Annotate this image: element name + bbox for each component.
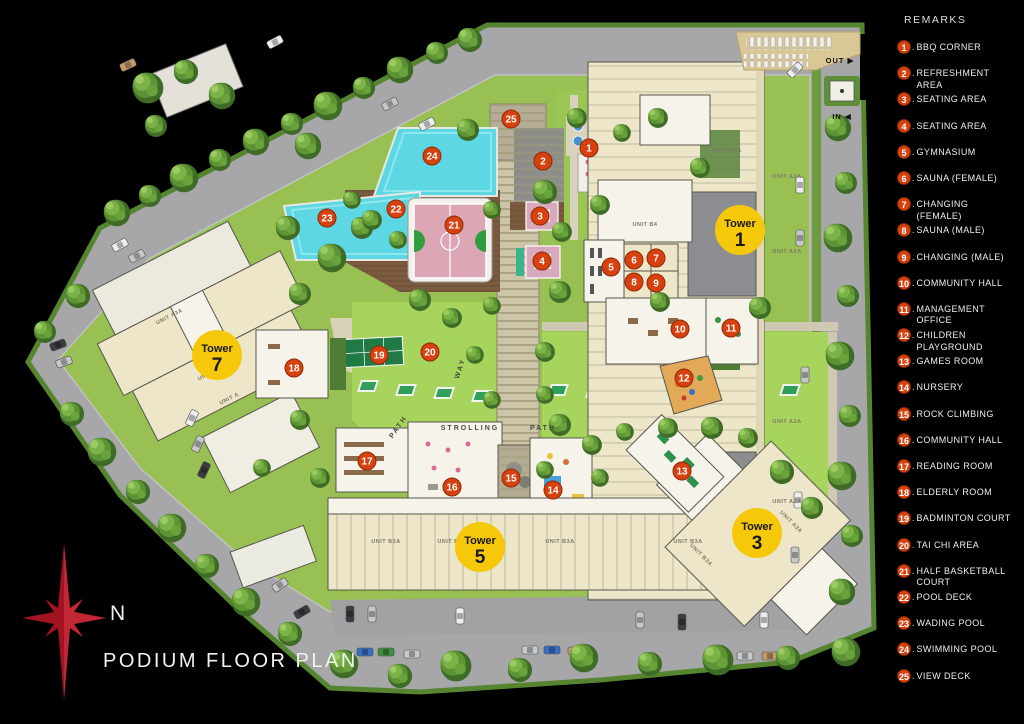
legend-item-number: 16 [897,433,911,447]
legend-item-number: 4 [897,119,911,133]
svg-text:7: 7 [653,254,659,265]
svg-text:10: 10 [674,325,686,336]
svg-text:13: 13 [676,467,688,478]
map-label: IN ◀ [832,112,852,121]
unit-label: UNIT B3A [371,539,400,545]
legend-item-number: 8 [897,223,911,237]
svg-text:16: 16 [446,483,458,494]
marker-13: 13 [673,462,691,480]
legend-item-label: Tai Chi Area [917,538,1013,552]
legend-item-number: 2 [897,66,911,80]
legend-item-label: Reading Room [917,459,1013,473]
marker-23: 23 [318,209,336,227]
legend-item-23: 23.Wading Pool [897,616,1022,642]
marker-2: 2 [534,152,552,170]
marker-10: 10 [671,320,689,338]
legend-item-7: 7.Changing (Female) [897,197,1022,223]
legend-item-number: 19 [897,511,911,525]
svg-text:20: 20 [424,348,436,359]
svg-text:5: 5 [475,547,486,568]
marker-8: 8 [625,273,643,291]
legend-item-25: 25.View Deck [897,669,1022,695]
compass-rose [22,544,106,700]
legend-item-number: 1 [897,40,911,54]
legend-item-label: Elderly Room [917,485,1013,499]
marker-15: 15 [502,469,520,487]
marker-16: 16 [443,478,461,496]
marker-24: 24 [423,147,441,165]
legend-item-15: 15.Rock Climbing [897,407,1022,433]
unit-label: UNIT B4 [633,222,658,228]
svg-text:Tower: Tower [201,343,233,355]
legend-item-number: 15 [897,407,911,421]
marker-5: 5 [602,258,620,276]
legend-item-number: 13 [897,354,911,368]
legend-item-17: 17.Reading Room [897,459,1022,485]
legend-item-label: Sauna (Female) [917,171,1013,185]
unit-label: UNIT A2A [712,148,741,154]
legend-item-label: Pool Deck [917,590,1013,604]
marker-19: 19 [370,346,388,364]
legend-item-number: 5 [897,145,911,159]
svg-text:1: 1 [735,230,746,251]
legend-item-20: 20.Tai Chi Area [897,538,1022,564]
legend-item-13: 13.Games Room [897,354,1022,380]
marker-14: 14 [544,481,562,499]
svg-text:8: 8 [631,278,637,289]
legend-item-number: 7 [897,197,911,211]
svg-text:9: 9 [653,279,659,290]
marker-11: 11 [722,319,740,337]
plan-title: Podium Floor Plan [103,650,358,673]
legend-item-label: Changing (Female) [917,197,1013,222]
tower-badge-5: Tower5 [455,522,505,572]
legend-item-number: 9 [897,250,911,264]
legend-list: 1.Bbq Corner2.Refreshment Area3.Seating … [897,40,1022,695]
legend-item-number: 3 [897,92,911,106]
legend-item-9: 9.Changing (Male) [897,250,1022,276]
svg-text:3: 3 [537,212,543,223]
svg-text:6: 6 [631,256,637,267]
svg-text:Tower: Tower [724,218,756,230]
legend-item-number: 22 [897,590,911,604]
unit-label: UNIT B3A [673,539,702,545]
north-label: N [110,602,125,626]
legend-item-label: Rock Climbing [917,407,1013,421]
marker-3: 3 [531,207,549,225]
marker-6: 6 [625,251,643,269]
site-map: UNIT A2AUNIT A2AUNIT A2AUNIT A2AUNIT A2A… [0,0,1024,724]
svg-text:11: 11 [726,324,737,335]
svg-text:7: 7 [212,355,223,376]
legend-item-label: View Deck [917,669,1013,683]
unit-label: UNIT A2A [772,499,801,505]
legend-item-label: Community Hall [917,276,1013,290]
unit-label: UNIT A2A [772,174,801,180]
marker-18: 18 [285,359,303,377]
legend-item-label: Badminton Court [917,511,1013,525]
marker-17: 17 [358,452,376,470]
legend-item-19: 19.Badminton Court [897,511,1022,537]
legend-item-18: 18.Elderly Room [897,485,1022,511]
legend-panel: Remarks 1.Bbq Corner2.Refreshment Area3.… [897,14,1022,695]
legend-item-number: 24 [897,642,911,656]
marker-9: 9 [647,274,665,292]
legend-item-label: Games Room [917,354,1013,368]
legend-item-2: 2.Refreshment Area [897,66,1022,92]
legend-item-21: 21.Half Basketball Court [897,564,1022,590]
marker-25: 25 [502,110,520,128]
legend-item-label: Children Playground [917,328,1013,353]
svg-text:17: 17 [361,457,373,468]
svg-text:Tower: Tower [741,521,773,533]
svg-text:15: 15 [505,474,517,485]
unit-label: UNIT A2A [772,249,801,255]
map-label: STROLLING [441,425,499,432]
svg-text:24: 24 [426,152,438,163]
legend-item-label: Community Hall [917,433,1013,447]
legend-item-5: 5.Gymnasium [897,145,1022,171]
legend-item-label: Gymnasium [917,145,1013,159]
legend-item-number: 14 [897,380,911,394]
svg-text:14: 14 [547,486,559,497]
guard-house [824,76,860,106]
svg-text:Tower: Tower [464,535,496,547]
legend-item-22: 22.Pool Deck [897,590,1022,616]
legend-item-label: Half Basketball Court [917,564,1013,589]
legend-item-number: 11 [897,302,911,316]
legend-item-label: Seating Area [917,119,1013,133]
legend-item-16: 16.Community Hall [897,433,1022,459]
svg-text:5: 5 [608,263,614,274]
legend-item-label: Wading Pool [917,616,1013,630]
legend-item-3: 3.Seating area [897,92,1022,118]
legend-item-number: 10 [897,276,911,290]
unit-label: UNIT B3A [545,539,574,545]
legend-item-10: 10.Community Hall [897,276,1022,302]
marker-1: 1 [580,139,598,157]
legend-item-4: 4.Seating Area [897,119,1022,145]
map-label: PATH [530,425,556,432]
svg-text:2: 2 [540,157,546,168]
legend-item-8: 8.Sauna (Male) [897,223,1022,249]
legend-item-number: 18 [897,485,911,499]
legend-item-label: Changing (Male) [917,250,1013,264]
svg-text:21: 21 [448,221,460,232]
marker-12: 12 [675,369,693,387]
legend-item-number: 12 [897,328,911,342]
legend-item-12: 12.Children Playground [897,328,1022,354]
marker-7: 7 [647,249,665,267]
legend-item-number: 25 [897,669,911,683]
legend-item-label: Seating area [917,92,1013,106]
marker-20: 20 [421,343,439,361]
svg-text:1: 1 [586,144,592,155]
svg-text:12: 12 [678,374,690,385]
svg-text:23: 23 [321,214,333,225]
tower-badge-3: Tower3 [732,508,782,558]
legend-item-11: 11.Management Office [897,302,1022,328]
tower-badge-7: Tower7 [192,330,242,380]
legend-item-number: 20 [897,538,911,552]
marker-21: 21 [445,216,463,234]
legend-item-number: 17 [897,459,911,473]
legend-item-6: 6.Sauna (Female) [897,171,1022,197]
legend-item-label: Swimming Pool [917,642,1013,656]
legend-item-label: Refreshment Area [917,66,1013,91]
svg-text:4: 4 [539,257,545,268]
svg-text:18: 18 [288,364,300,375]
marker-22: 22 [387,200,405,218]
svg-text:22: 22 [390,205,402,216]
legend-item-number: 23 [897,616,911,630]
legend-item-14: 14.Nursery [897,380,1022,406]
legend-header: Remarks [904,14,1022,26]
marker-4: 4 [533,252,551,270]
map-label: OUT ▶ [826,56,855,65]
svg-text:25: 25 [505,115,517,126]
tower-badge-1: Tower1 [715,205,765,255]
podium-floor-plan: UNIT A2AUNIT A2AUNIT A2AUNIT A2AUNIT A2A… [0,0,1024,724]
legend-item-number: 6 [897,171,911,185]
legend-item-24: 24.Swimming Pool [897,642,1022,668]
svg-text:19: 19 [373,351,385,362]
legend-item-label: Nursery [917,380,1013,394]
legend-item-label: Sauna (Male) [917,223,1013,237]
unit-label: UNIT A2A [772,419,801,425]
basketball-court [408,198,492,282]
svg-text:3: 3 [752,533,763,554]
legend-item-label: Bbq Corner [917,40,1013,54]
legend-item-1: 1.Bbq Corner [897,40,1022,66]
legend-item-label: Management Office [917,302,1013,327]
legend-item-number: 21 [897,564,911,578]
